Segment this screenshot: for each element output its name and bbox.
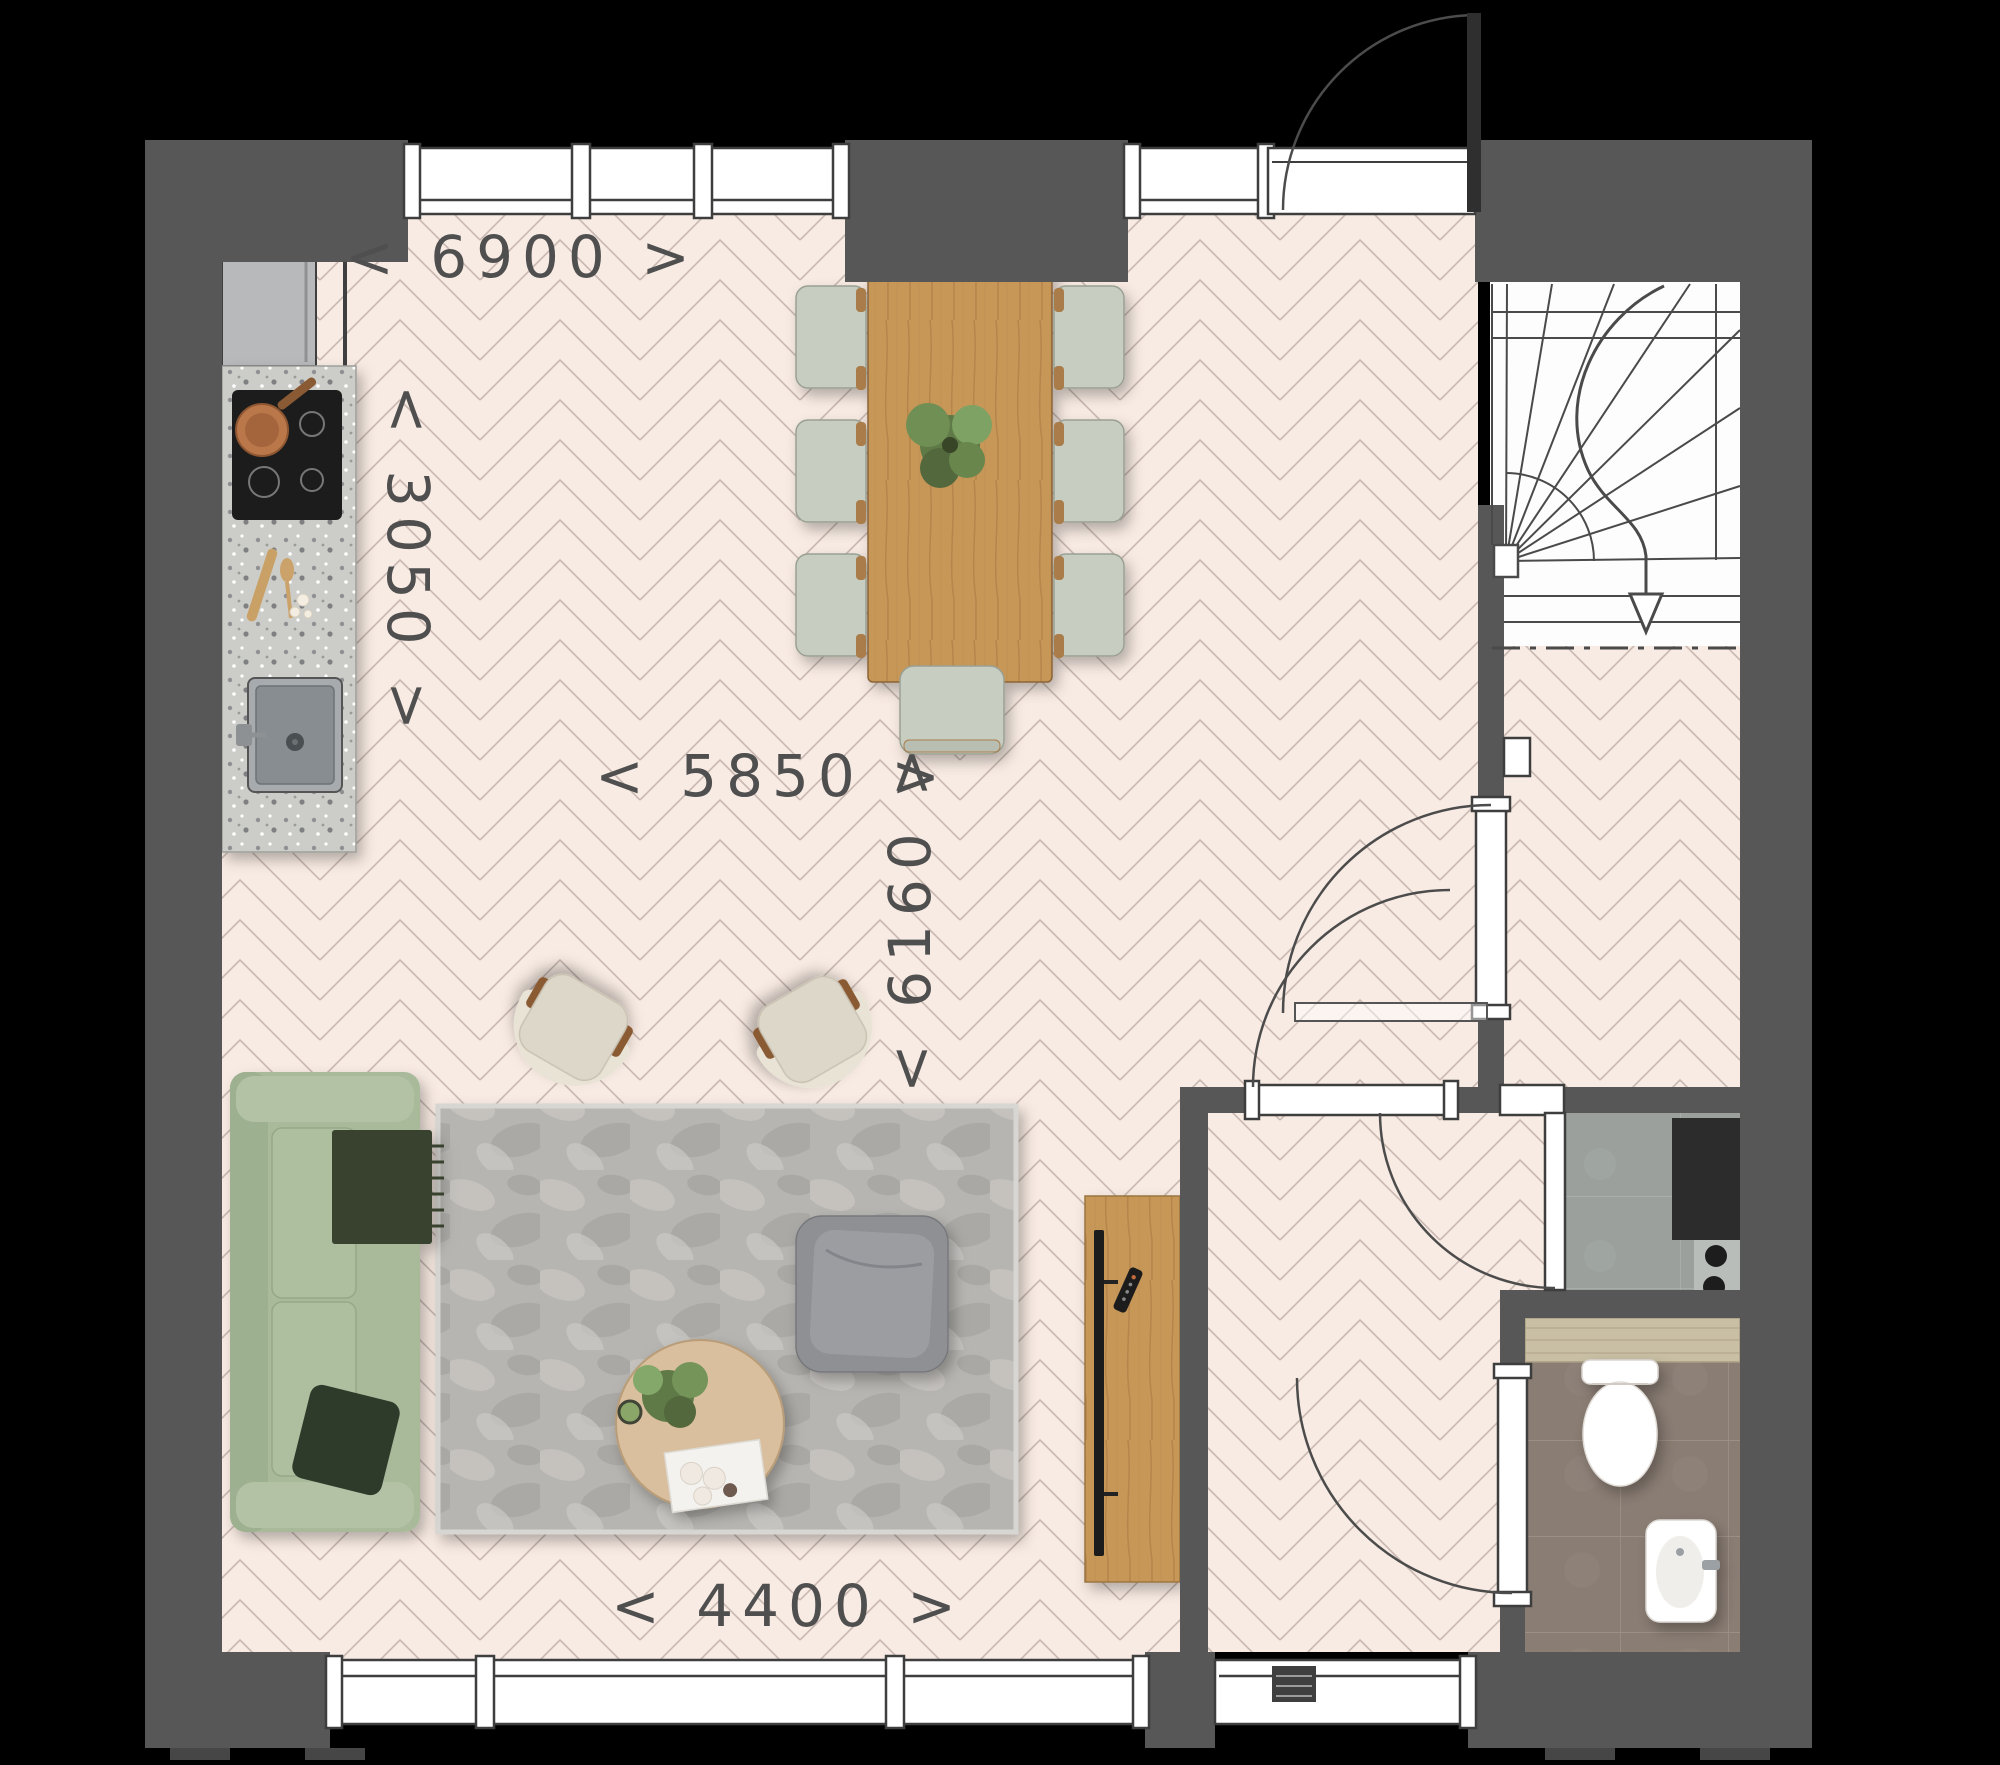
upper-hall-floor <box>1504 645 1740 1087</box>
window-top-right <box>1124 144 1274 218</box>
wall-right <box>1740 158 1812 1748</box>
wall-bottom-left-block <box>145 1652 330 1748</box>
wall-stair-hall-lower <box>1478 1013 1504 1087</box>
entrance-threshold <box>1268 148 1475 214</box>
pouf <box>796 1216 948 1372</box>
wall-hall-vertical <box>1180 1113 1208 1652</box>
dining-chairs-left <box>796 286 866 658</box>
wc-shelf <box>1525 1318 1740 1362</box>
wall-bottom-foot <box>1145 1652 1215 1748</box>
dim-living-depth: < 6160 > <box>876 739 944 1093</box>
newel-post <box>1494 545 1518 577</box>
staircase-floor <box>1490 282 1740 646</box>
dim-bottom-width: < 4400 > <box>611 1572 965 1640</box>
dining-chairs-right <box>1054 286 1124 658</box>
sofa <box>230 1072 444 1532</box>
stub-2 <box>305 1748 365 1760</box>
window-bottom-right <box>1215 1656 1476 1728</box>
stub-3 <box>1545 1748 1615 1760</box>
wall-left <box>145 140 222 1748</box>
wall-hall-horizontal-c <box>1564 1087 1740 1113</box>
dim-top-width: < 6900 > <box>345 223 699 291</box>
kitchen-sink <box>236 678 342 792</box>
toilet-icon <box>1582 1360 1658 1486</box>
washer-counter <box>1672 1118 1740 1240</box>
wall-top-pillar <box>845 140 1128 282</box>
stub-1 <box>170 1748 230 1760</box>
door-leaf-outline <box>1295 1003 1487 1021</box>
coffee-table-tray <box>664 1440 767 1513</box>
lower-hall-floor <box>1208 1113 1546 1652</box>
floorplan-stage: < 6900 > < 3050 > < 5850 > < 6160 > < 44… <box>0 0 2000 1765</box>
kitchen-hob <box>232 376 342 520</box>
window-top-left <box>404 144 849 218</box>
fridge <box>222 256 316 366</box>
faucet-icon <box>236 724 252 746</box>
throw-blanket <box>332 1130 444 1244</box>
hookup-knob-icon <box>1705 1245 1727 1267</box>
dim-kitchen-depth: < 3050 > <box>374 385 442 739</box>
entrance-door-leaf <box>1467 13 1481 212</box>
wall-bottom-right-block <box>1468 1652 1812 1748</box>
washbasin-icon <box>1646 1520 1720 1622</box>
tv-cabinet <box>1085 1196 1180 1582</box>
tech-door-leaf <box>1545 1113 1565 1290</box>
wall-tech-wc <box>1500 1290 1740 1318</box>
wall-box-meter <box>1504 738 1530 776</box>
tv-icon <box>1094 1230 1104 1556</box>
wall-hall-horizontal-a <box>1180 1087 1253 1113</box>
floor-plan-svg: < 6900 > < 3050 > < 5850 > < 6160 > < 44… <box>0 0 2000 1765</box>
window-bottom-left <box>326 1656 1149 1728</box>
stub-4 <box>1700 1748 1770 1760</box>
